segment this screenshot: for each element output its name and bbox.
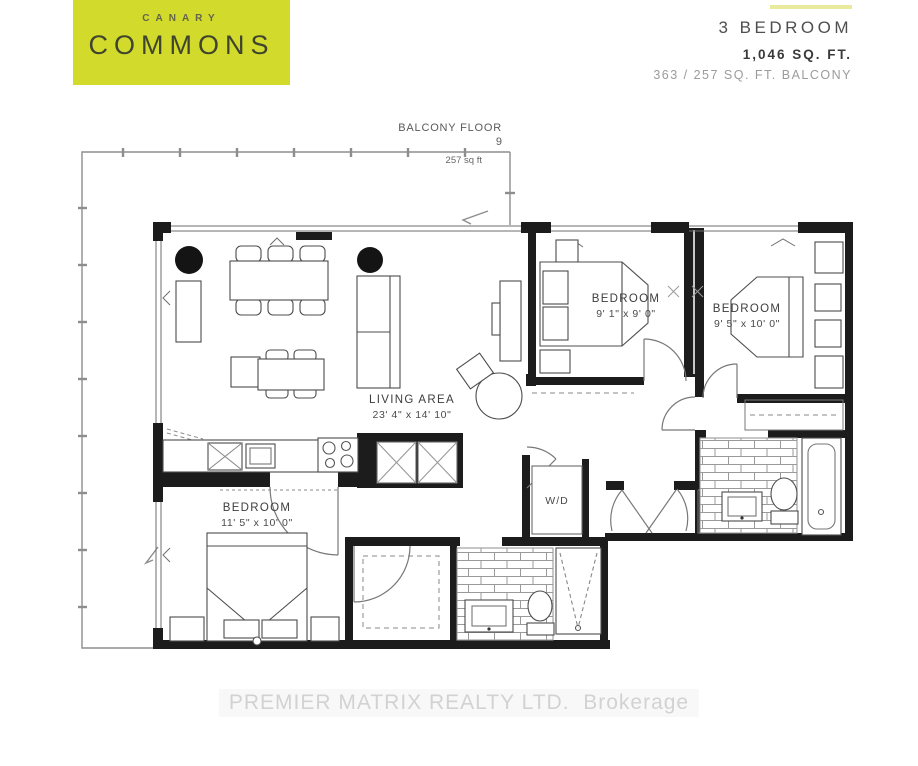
room-dims: 9' 1" x 9' 0" bbox=[592, 308, 661, 320]
bedroom-middle-label: BEDROOM 9' 1" x 9' 0" bbox=[592, 293, 661, 320]
toilet bbox=[771, 478, 797, 510]
sideboard bbox=[176, 281, 201, 342]
room-name: BEDROOM bbox=[592, 293, 661, 305]
walkin-closet-dashed bbox=[363, 556, 439, 628]
living-area-label: LIVING AREA 23' 4" x 14' 10" bbox=[369, 394, 455, 421]
bathroom-bottom bbox=[457, 548, 601, 640]
entry-door-leaf-2 bbox=[646, 490, 676, 533]
balcony-door-mark bbox=[463, 211, 488, 224]
room-name: BEDROOM bbox=[713, 303, 782, 315]
room-name: LIVING AREA bbox=[369, 394, 455, 406]
balcony-floor-number: 9 bbox=[386, 136, 502, 148]
toilet-2 bbox=[528, 591, 552, 621]
tv-unit bbox=[500, 281, 521, 361]
room-dims: 23' 4" x 14' 10" bbox=[369, 409, 455, 421]
bathroom-right bbox=[700, 438, 841, 535]
work-table bbox=[258, 359, 324, 390]
stove bbox=[318, 438, 358, 472]
laundry-label: W/D bbox=[545, 495, 568, 507]
room-name: BEDROOM bbox=[221, 502, 293, 514]
floorplan-page: CANARY COMMONS 3 BEDROOM 1,046 SQ. FT. 3… bbox=[0, 0, 918, 766]
brokerage-watermark: PREMIER MATRIX REALTY LTD. Brokerage bbox=[219, 689, 699, 717]
column-2 bbox=[357, 247, 383, 273]
balcony-title: BALCONY FLOOR bbox=[386, 122, 502, 134]
shower bbox=[556, 548, 601, 634]
room-dims: 11' 5" x 10' 0" bbox=[221, 517, 293, 529]
entry-door-leaf bbox=[622, 490, 652, 533]
living-furniture bbox=[175, 246, 522, 419]
bedroom-right-label: BEDROOM 9' 5" x 10' 0" bbox=[713, 303, 782, 330]
dining-table bbox=[230, 261, 328, 300]
balcony-area: 257 sq ft bbox=[390, 155, 482, 166]
column bbox=[175, 246, 203, 274]
floorplan-svg bbox=[0, 0, 918, 766]
bedroom-lower-label: BEDROOM 11' 5" x 10' 0" bbox=[221, 502, 293, 529]
floorplan-drawing: BALCONY FLOOR 9 257 sq ft LIVING AREA 23… bbox=[0, 0, 918, 766]
room-dims: 9' 5" x 10' 0" bbox=[713, 318, 782, 330]
